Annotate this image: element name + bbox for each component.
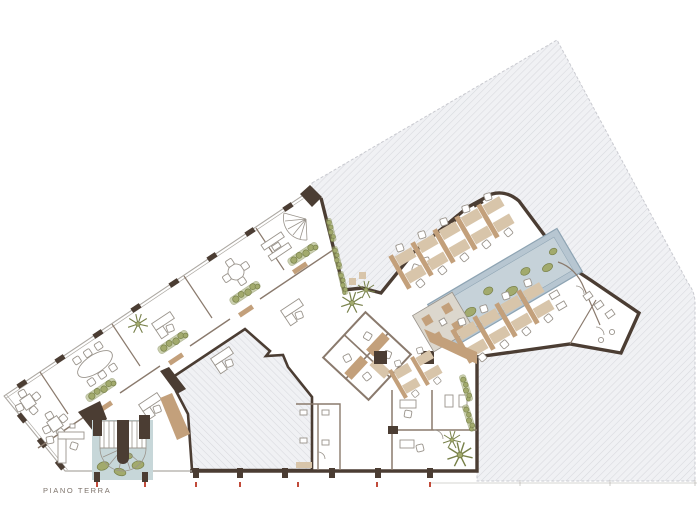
floor-plan-canvas: PIANO TERRA xyxy=(0,0,700,525)
column xyxy=(374,351,387,364)
floor-plan-drawing: PIANO TERRA xyxy=(0,0,700,525)
stair-core-wall xyxy=(117,420,129,464)
floor-label: PIANO TERRA xyxy=(43,486,111,495)
